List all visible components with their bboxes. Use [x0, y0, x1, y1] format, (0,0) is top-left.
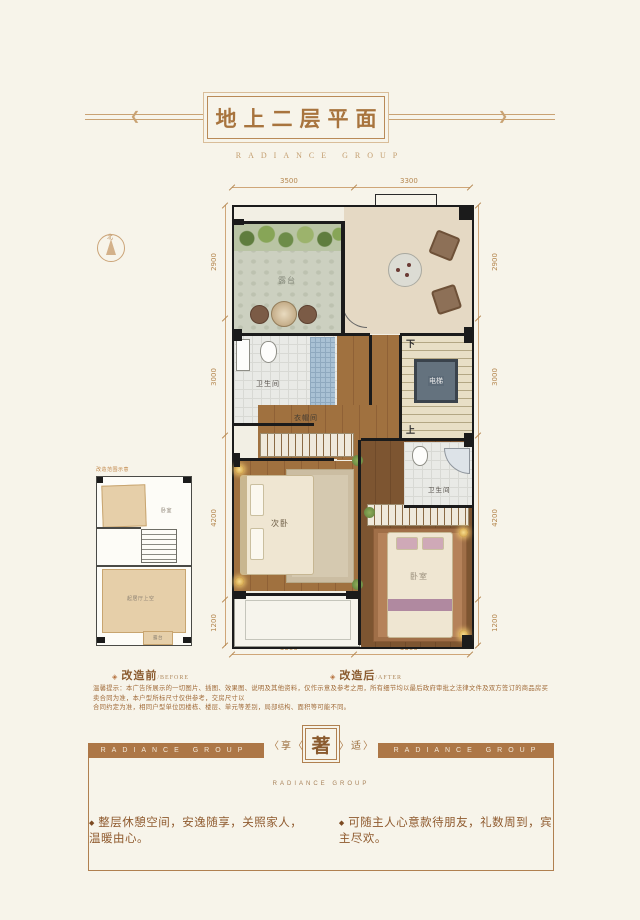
dim-left-3: 4200 [210, 509, 218, 527]
dim-left-4: 1200 [210, 614, 218, 632]
master-label: 卧室 [410, 571, 428, 582]
footer-emblem: 〈 享 〈 著 〉 适 〉 [264, 728, 378, 760]
bathroom-1-label: 卫生间 [256, 379, 280, 389]
emblem-sub-row: RADIANCE GROUP [89, 772, 553, 790]
caption-after-icon: ◈ [330, 673, 335, 681]
toilet-icon [260, 341, 277, 363]
dim-top-2: 3300 [400, 177, 418, 185]
before-wall [183, 477, 191, 483]
sink-icon [236, 339, 250, 371]
brochure-page: { "header": { "title": "地上二层平面", "subtit… [0, 0, 640, 920]
emblem-chevron-icon: 〈 [293, 737, 303, 752]
emblem-chevron-icon: 〉 [339, 737, 349, 752]
bedroom-2-bed-icon: 次卧 [240, 475, 314, 575]
dim-tick [222, 642, 228, 648]
compass-needle-icon [106, 239, 116, 255]
footer-bullet-2-text: 可随主人心意款待朋友，礼数周到，宾主尽欢。 [339, 817, 552, 845]
emblem-right-char: 适 [351, 737, 361, 752]
wall-lamp-icon [459, 528, 468, 537]
pillow-icon [396, 537, 418, 550]
staircase: 下 上 电梯 [402, 335, 472, 439]
before-living-label: 起居厅上空 [127, 595, 155, 602]
wall-segment [464, 433, 472, 447]
dim-right-1: 2900 [491, 253, 499, 271]
dim-right-2: 3000 [491, 368, 499, 386]
bullet-icon: ◆ [89, 819, 95, 827]
before-plan: 卧室 起居厅上空 露台 [96, 476, 192, 646]
dim-line-right [478, 205, 479, 646]
dim-line-left [225, 205, 226, 646]
header-deco-right-icon: ❯ [498, 111, 508, 121]
dim-right-3: 4200 [491, 509, 499, 527]
title-box: 地上二层平面 [207, 96, 385, 139]
elevator-label: 电梯 [428, 376, 444, 386]
before-balcony-label: 露台 [153, 635, 163, 641]
wall-segment [234, 333, 370, 336]
caption-before: ◈ 改造前/BEFORE [112, 666, 189, 684]
armchair-icon [431, 284, 463, 316]
wall-segment [399, 335, 402, 439]
table-item-icon [396, 268, 400, 272]
wall-segment [369, 335, 372, 405]
bed-throw-icon [388, 599, 452, 611]
dim-tick [475, 642, 481, 648]
header-deco-left-icon: ❮ [130, 111, 140, 121]
stair-down-label: 下 [406, 337, 415, 350]
bay-step [245, 600, 351, 640]
plant-icon [364, 507, 375, 518]
emblem-center-char: 著 [311, 731, 330, 758]
bathroom-2-label: 卫生间 [428, 484, 451, 494]
before-stairs-icon [141, 529, 177, 563]
table-item-icon [405, 273, 409, 277]
before-balcony: 露台 [143, 631, 173, 645]
armchair-icon [428, 229, 461, 262]
footer-band-left: RADIANCE GROUP [88, 747, 261, 754]
before-wall [97, 477, 103, 483]
caption-before-icon: ◈ [112, 673, 117, 681]
round-table-icon [388, 253, 422, 287]
wall-segment [462, 635, 472, 647]
bathroom-2: 卫生间 [404, 442, 472, 506]
bottom-bay [234, 593, 360, 647]
terrace-chair-icon [250, 305, 269, 324]
wall-segment [341, 221, 345, 334]
emblem-chevron-icon: 〈 [269, 737, 279, 752]
footer-band-right: RADIANCE GROUP [381, 747, 554, 754]
before-bedroom-label: 卧室 [161, 507, 172, 514]
emblem-center-box: 著 [305, 728, 337, 760]
wall-lamp-icon [235, 577, 244, 586]
caption-before-text: 改造前 [121, 670, 157, 682]
toilet-icon [412, 446, 428, 466]
terrace-label: 露台 [278, 275, 296, 286]
footer-bullet-2: ◆ 可随主人心意款待朋友，礼数周到，宾主尽欢。 [339, 814, 553, 846]
footer-bullets: ◆ 整层休憩空间，安逸随享，关照家人，温暖由心。 ◆ 可随主人心意款待朋友，礼数… [89, 814, 553, 846]
emblem-left-char: 享 [281, 737, 291, 752]
before-wall [183, 637, 191, 643]
dim-right-4: 1200 [491, 614, 499, 632]
closet-hangers-icon [260, 433, 354, 457]
wall-segment [234, 458, 334, 461]
brand-subtitle: RADIANCE GROUP [236, 151, 404, 160]
stair-up-label: 上 [406, 423, 415, 436]
terrace-table-icon [271, 301, 297, 327]
caption-after-text: 改造后 [339, 670, 375, 682]
elevator: 电梯 [414, 359, 458, 403]
footer-bullet-1-text: 整层休憩空间，安逸随享，关照家人，温暖由心。 [89, 817, 302, 845]
dim-tick [467, 651, 473, 657]
caption-after: ◈ 改造后/AFTER [330, 666, 402, 684]
shower-tray-icon [444, 448, 470, 474]
wall-segment [358, 440, 361, 645]
wall-segment [459, 207, 472, 220]
master-bed-icon: 卧室 [387, 532, 453, 638]
wall-segment [346, 591, 358, 599]
emblem-chevron-icon: 〉 [363, 737, 373, 752]
wall-segment [234, 453, 240, 467]
wall-segment [464, 327, 472, 343]
bullet-icon: ◆ [339, 819, 345, 827]
wall-segment [234, 423, 314, 426]
wall-segment [234, 593, 358, 596]
disclaimer-line-1: 温馨提示：本广告所展示的一切图片、插图、效果图、说明及其他资料，仅作示意及参考之… [93, 684, 551, 703]
headboard-icon [241, 476, 247, 574]
disclaimer-line-2: 合同约定为准，相同户型单位因楼栋、楼层、单元等差别，局部结构、面积等可能不同。 [93, 703, 551, 713]
before-wall [97, 527, 141, 529]
before-wall [97, 565, 191, 567]
emblem-subtitle: RADIANCE GROUP [273, 781, 370, 787]
wall-segment [361, 438, 472, 441]
footer-bullet-1: ◆ 整层休憩空间，安逸随享，关照家人，温暖由心。 [89, 814, 313, 846]
dim-left-1: 2900 [210, 253, 218, 271]
table-item-icon [407, 263, 411, 267]
compass-icon [97, 234, 125, 262]
footer-box: RADIANCE GROUP RADIANCE GROUP 〈 享 〈 著 〉 … [88, 743, 554, 871]
dim-top-1: 3500 [280, 177, 298, 185]
pillow-icon [250, 528, 264, 560]
wall-segment [234, 221, 342, 224]
wall-segment [400, 333, 472, 336]
caption-before-en: /BEFORE [157, 675, 189, 681]
terrace: 露台 [234, 223, 342, 333]
dim-tick [467, 184, 473, 190]
page-title: 地上二层平面 [209, 103, 384, 133]
disclaimer: 温馨提示：本广告所展示的一切图片、插图、效果图、说明及其他资料，仅作示意及参考之… [93, 684, 551, 713]
pillow-icon [250, 484, 264, 516]
wall-segment [404, 505, 472, 508]
pillow-icon [422, 537, 444, 550]
before-wall [97, 637, 105, 643]
dim-left-2: 3000 [210, 368, 218, 386]
bedroom-2: 次卧 [234, 461, 358, 591]
floor-plan: 露台 卫生间 下 上 电梯 衣帽间 次卧 [232, 205, 474, 649]
before-shaded-area [101, 484, 146, 528]
closet-label: 衣帽间 [294, 413, 318, 423]
terrace-chair-icon [298, 305, 317, 324]
bedroom-2-label: 次卧 [271, 518, 289, 529]
header-subtitle-row: RADIANCE GROUP [0, 145, 640, 163]
caption-after-en: /AFTER [375, 675, 402, 681]
terrace-plants-icon [234, 223, 342, 251]
before-plan-note: 改造范围示意 [96, 466, 129, 473]
